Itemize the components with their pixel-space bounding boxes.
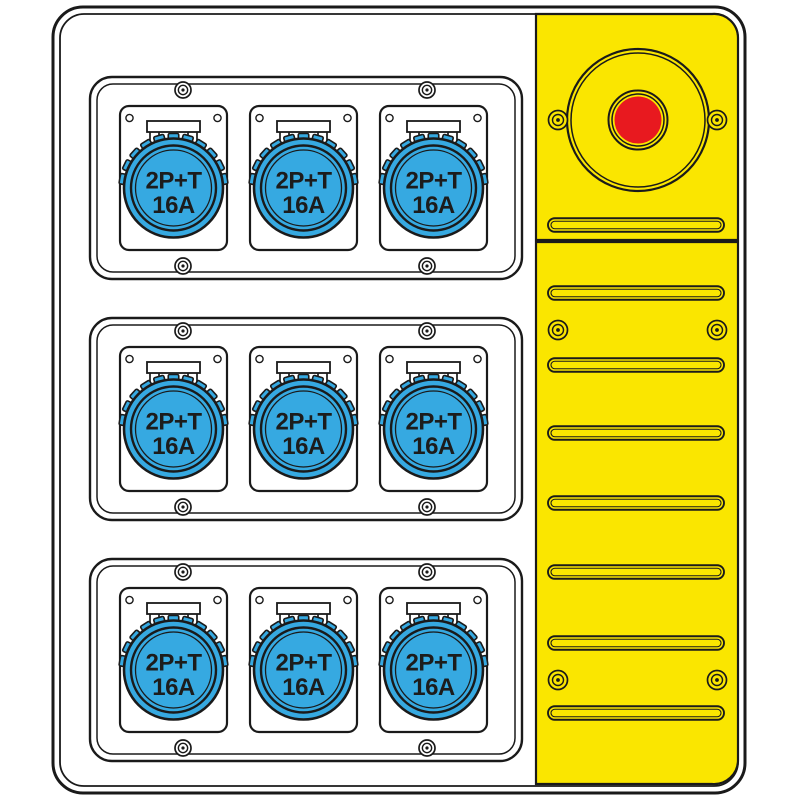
- socket-2p-t-16a[interactable]: 2P+T16A: [119, 347, 228, 491]
- socket-label-line1: 2P+T: [145, 409, 202, 436]
- socket-label-line2: 16A: [412, 192, 455, 219]
- socket-label-line2: 16A: [282, 433, 325, 460]
- vent-slot: [548, 426, 724, 440]
- socket-module: 2P+T16A2P+T16A2P+T16A: [90, 559, 522, 761]
- socket-label-line1: 2P+T: [405, 168, 462, 195]
- plate-hole: [386, 114, 393, 121]
- vent-slot: [548, 565, 724, 579]
- lid-handle-bar: [407, 603, 460, 614]
- socket-2p-t-16a[interactable]: 2P+T16A: [249, 106, 358, 250]
- screw-icon: [419, 82, 435, 98]
- screw-icon: [175, 499, 191, 515]
- screw-icon: [175, 82, 191, 98]
- socket-2p-t-16a[interactable]: 2P+T16A: [379, 106, 488, 250]
- screw-icon: [175, 740, 191, 756]
- socket-label-line2: 16A: [412, 674, 455, 701]
- socket-label-line2: 16A: [282, 674, 325, 701]
- socket-label-line2: 16A: [282, 192, 325, 219]
- screw-icon: [175, 564, 191, 580]
- plate-hole: [344, 114, 351, 121]
- plate-hole: [474, 596, 481, 603]
- screw-icon: [419, 740, 435, 756]
- plate-hole: [214, 355, 221, 362]
- lid-handle-bar: [277, 121, 330, 132]
- socket-label-line2: 16A: [152, 192, 195, 219]
- plate-hole: [214, 114, 221, 121]
- vent-slot: [548, 358, 724, 372]
- screw-icon: [175, 258, 191, 274]
- board-canvas: 2P+T16A2P+T16A2P+T16A2P+T16A2P+T16A2P+T1…: [0, 0, 800, 800]
- vent-slot: [548, 218, 724, 232]
- socket-2p-t-16a[interactable]: 2P+T16A: [119, 588, 228, 732]
- socket-label-line2: 16A: [152, 433, 195, 460]
- emergency-stop-button[interactable]: [609, 91, 668, 150]
- socket-2p-t-16a[interactable]: 2P+T16A: [379, 347, 488, 491]
- socket-label-line1: 2P+T: [275, 409, 332, 436]
- screw-icon: [419, 323, 435, 339]
- screw-icon: [708, 111, 727, 130]
- socket-2p-t-16a[interactable]: 2P+T16A: [249, 588, 358, 732]
- plate-hole: [126, 596, 133, 603]
- lid-handle-bar: [407, 362, 460, 373]
- socket-label-line1: 2P+T: [405, 650, 462, 677]
- screw-icon: [708, 321, 727, 340]
- screw-icon: [419, 499, 435, 515]
- plate-hole: [126, 114, 133, 121]
- plate-hole: [474, 114, 481, 121]
- vent-slot: [548, 496, 724, 510]
- lid-handle-bar: [277, 603, 330, 614]
- screw-icon: [549, 671, 568, 690]
- screw-icon: [708, 671, 727, 690]
- distribution-board-drawing: 2P+T16A2P+T16A2P+T16A2P+T16A2P+T16A2P+T1…: [0, 0, 800, 800]
- vent-slot: [548, 706, 724, 720]
- lid-handle-bar: [147, 121, 200, 132]
- screw-icon: [549, 321, 568, 340]
- socket-label-line2: 16A: [152, 674, 195, 701]
- emergency-stop-icon[interactable]: [615, 97, 662, 144]
- socket-label-line1: 2P+T: [275, 650, 332, 677]
- lid-handle-bar: [147, 603, 200, 614]
- socket-2p-t-16a[interactable]: 2P+T16A: [379, 588, 488, 732]
- screw-icon: [419, 258, 435, 274]
- plate-hole: [256, 114, 263, 121]
- socket-module: 2P+T16A2P+T16A2P+T16A: [90, 318, 522, 520]
- plate-hole: [474, 355, 481, 362]
- screw-icon: [549, 111, 568, 130]
- lid-handle-bar: [407, 121, 460, 132]
- side-panel-bottom-section: [536, 242, 738, 784]
- socket-label-line2: 16A: [412, 433, 455, 460]
- vent-slot: [548, 286, 724, 300]
- socket-label-line1: 2P+T: [275, 168, 332, 195]
- plate-hole: [386, 596, 393, 603]
- lid-handle-bar: [277, 362, 330, 373]
- screw-icon: [175, 323, 191, 339]
- socket-label-line1: 2P+T: [145, 650, 202, 677]
- plate-hole: [126, 355, 133, 362]
- socket-2p-t-16a[interactable]: 2P+T16A: [119, 106, 228, 250]
- plate-hole: [256, 596, 263, 603]
- plate-hole: [214, 596, 221, 603]
- plate-hole: [344, 355, 351, 362]
- plate-hole: [256, 355, 263, 362]
- socket-module: 2P+T16A2P+T16A2P+T16A: [90, 77, 522, 279]
- socket-2p-t-16a[interactable]: 2P+T16A: [249, 347, 358, 491]
- socket-label-line1: 2P+T: [145, 168, 202, 195]
- vent-slot: [548, 636, 724, 650]
- screw-icon: [419, 564, 435, 580]
- plate-hole: [344, 596, 351, 603]
- socket-label-line1: 2P+T: [405, 409, 462, 436]
- plate-hole: [386, 355, 393, 362]
- lid-handle-bar: [147, 362, 200, 373]
